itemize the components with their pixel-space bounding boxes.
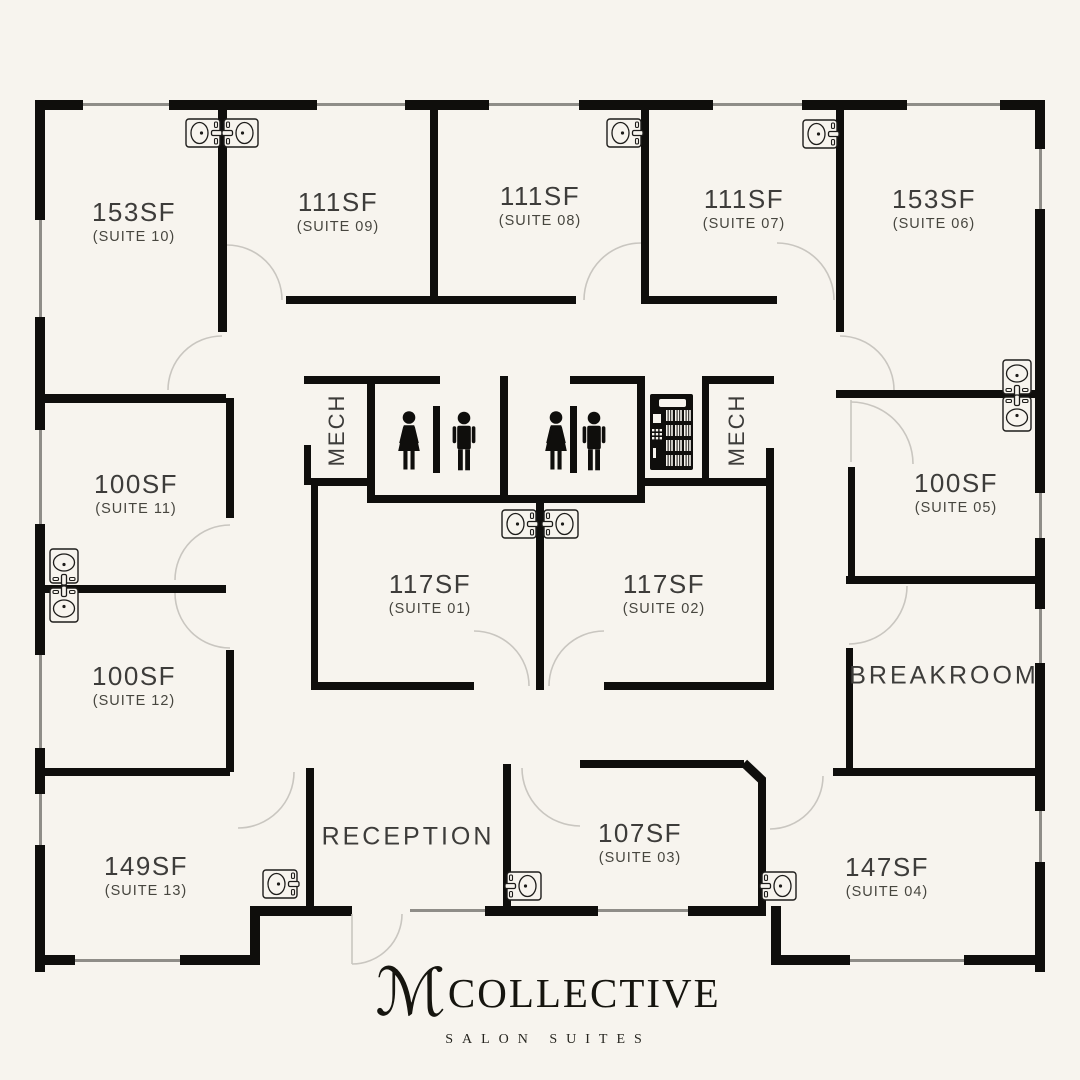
sink-icon	[1003, 395, 1031, 431]
floor-plan-drawing	[0, 0, 1080, 1080]
suite-01-label: 117SF(SUITE 01)	[389, 570, 472, 618]
restroom-men-icon	[453, 412, 476, 471]
breakroom-label: BREAKROOM	[849, 662, 1039, 691]
restroom-divider-bar	[433, 406, 440, 473]
sink-icon	[50, 549, 78, 585]
restroom-sign-left	[398, 406, 475, 473]
brand-logo: ℳ COLLECTIVE SALON SUITES	[375, 960, 720, 1048]
suite-06-label: 153SF(SUITE 06)	[892, 185, 976, 233]
restroom-women-icon	[545, 411, 567, 469]
restroom-sign-right	[545, 406, 605, 473]
sink-icon	[505, 872, 541, 900]
reception-label: RECEPTION	[322, 823, 495, 852]
brand-monogram: ℳ	[375, 960, 446, 1026]
suite-12-label: 100SF(SUITE 12)	[92, 662, 176, 710]
suite-08-label: 111SF(SUITE 08)	[499, 182, 582, 230]
suite-07-label: 111SF(SUITE 07)	[703, 185, 786, 233]
sink-icon	[186, 119, 222, 147]
suite-13-label: 149SF(SUITE 13)	[104, 852, 188, 900]
sink-icon	[803, 120, 839, 148]
sink-icon	[263, 870, 299, 898]
suite-03-label: 107SF(SUITE 03)	[598, 819, 682, 867]
suite-10-label: 153SF(SUITE 10)	[92, 198, 176, 246]
restroom-women-icon	[398, 411, 420, 469]
sink-icon	[50, 586, 78, 622]
brand-tagline: SALON SUITES	[375, 1032, 720, 1048]
sink-icon	[1003, 360, 1031, 396]
restroom-men-icon	[583, 412, 606, 471]
wall-chamfer	[744, 763, 763, 781]
sink-icon	[222, 119, 258, 147]
mech-room-right-label: MECH	[724, 394, 750, 467]
suite-09-label: 111SF(SUITE 09)	[297, 188, 380, 236]
floor-plan-canvas: 153SF(SUITE 10) 111SF(SUITE 09) 111SF(SU…	[0, 0, 1080, 1080]
suite-05-label: 100SF(SUITE 05)	[914, 469, 998, 517]
sink-icon	[542, 510, 578, 538]
vending-machine-icon	[650, 394, 693, 470]
sink-icon	[502, 510, 538, 538]
suite-04-label: 147SF(SUITE 04)	[845, 853, 929, 901]
restroom-divider-bar	[570, 406, 577, 473]
sink-icon	[760, 872, 796, 900]
suite-11-label: 100SF(SUITE 11)	[94, 470, 178, 518]
mech-room-left-label: MECH	[324, 394, 350, 467]
suite-02-label: 117SF(SUITE 02)	[623, 570, 706, 618]
brand-name: COLLECTIVE	[448, 973, 721, 1014]
sink-icon	[607, 119, 643, 147]
